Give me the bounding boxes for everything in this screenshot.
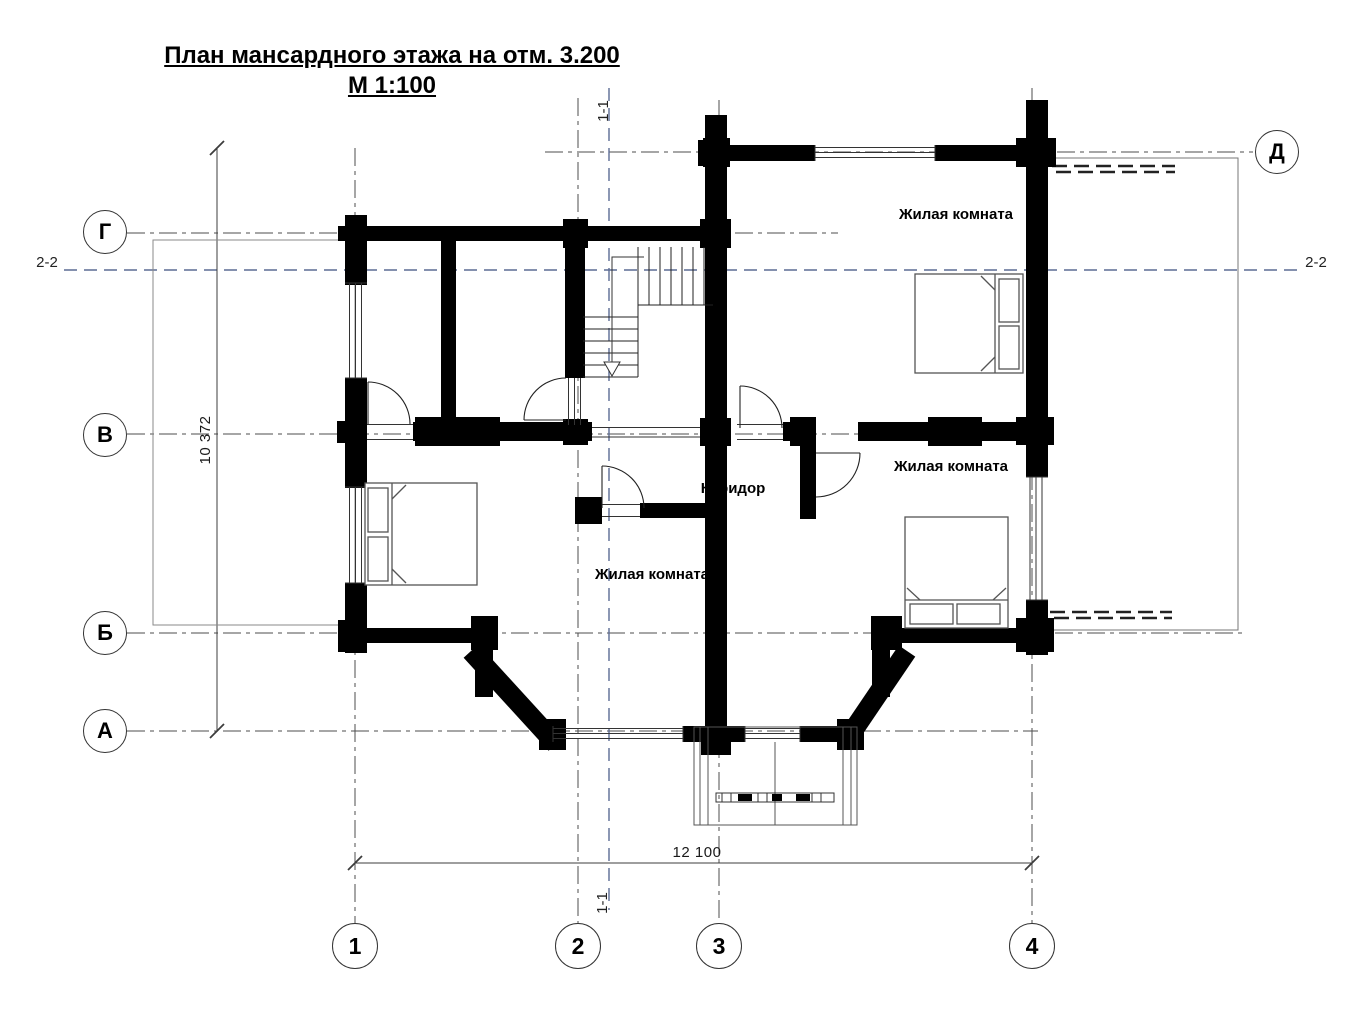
window xyxy=(553,726,683,742)
window xyxy=(815,145,935,161)
floor-plan-sheet: План мансардного этажа на отм. 3.200 М 1… xyxy=(0,0,1355,1014)
axis-bubble-col-1: 1 xyxy=(332,923,378,969)
left-roof-outline xyxy=(153,240,355,625)
window xyxy=(345,283,367,378)
window xyxy=(1026,477,1048,600)
stair-direction-arrow xyxy=(604,362,620,376)
drawing-title: План мансардного этажа на отм. 3.200 xyxy=(142,42,642,70)
terrace-outline xyxy=(1048,158,1238,630)
axis-bubble-row-v: В xyxy=(83,413,127,457)
floor-plan-drawing xyxy=(0,0,1355,1014)
axis-bubble-row-g: Г xyxy=(83,210,127,254)
door xyxy=(368,382,410,424)
axis-bubble-col-2: 2 xyxy=(555,923,601,969)
section-mark-2-2-right: 2-2 xyxy=(1286,254,1346,271)
axis-bubble-row-a: А xyxy=(83,709,127,753)
dimension-width: 12 100 xyxy=(637,844,757,861)
balcony-railing xyxy=(716,793,834,802)
room-label-corridor: Коридор xyxy=(668,478,798,500)
stair-railing xyxy=(592,428,700,438)
bed-double xyxy=(365,483,477,585)
room-label-bedroom-left: Жилая комната xyxy=(592,564,712,586)
dimension-height: 10 372 xyxy=(197,380,215,500)
drawing-scale: М 1:100 xyxy=(142,72,642,100)
section-mark-1-1-bottom: 1-1 xyxy=(594,883,610,923)
axis-bubble-col-4: 4 xyxy=(1009,923,1055,969)
staircase xyxy=(583,247,713,377)
section-mark-1-1-top: 1-1 xyxy=(595,91,611,131)
axis-bubble-row-b: Б xyxy=(83,611,127,655)
glazed-partition xyxy=(569,378,581,425)
room-label-bedroom-top: Жилая комната xyxy=(896,204,1016,226)
terrace-railing-hatch xyxy=(1050,166,1175,618)
door xyxy=(524,378,566,420)
window xyxy=(745,726,800,742)
bed-double xyxy=(905,517,1008,628)
axis-bubble-col-3: 3 xyxy=(696,923,742,969)
room-label-bedroom-right: Жилая комната xyxy=(891,456,1011,478)
section-mark-2-2-left: 2-2 xyxy=(17,254,77,271)
bed-double xyxy=(915,274,1023,373)
door xyxy=(740,386,782,428)
window xyxy=(345,487,367,583)
axis-bubble-row-d: Д xyxy=(1255,130,1299,174)
door xyxy=(816,453,860,497)
dimension-lines xyxy=(210,141,1039,870)
